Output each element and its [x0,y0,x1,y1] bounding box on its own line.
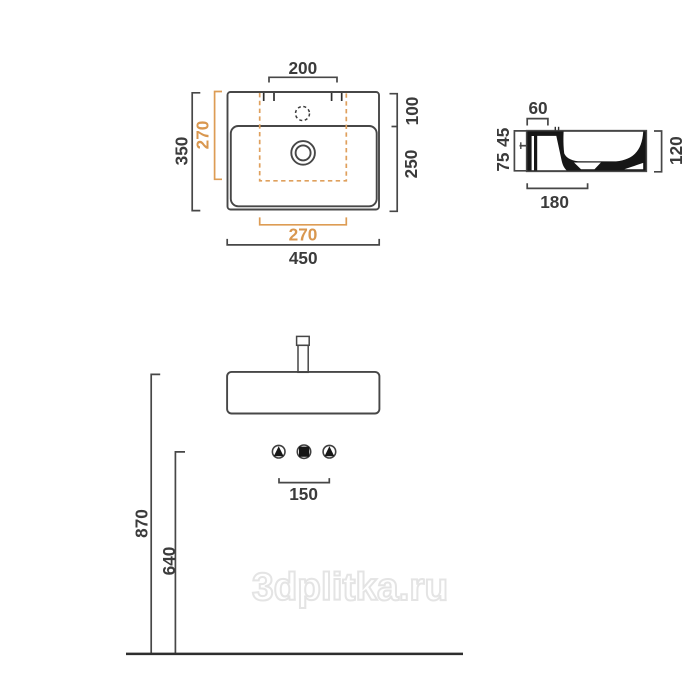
svg-text:100: 100 [402,97,422,126]
svg-text:350: 350 [171,137,191,166]
svg-text:120: 120 [666,136,686,165]
svg-text:270: 270 [193,121,213,150]
svg-text:250: 250 [401,150,421,179]
svg-text:3dplitka.ru: 3dplitka.ru [252,566,448,609]
svg-text:200: 200 [288,58,317,78]
svg-text:75: 75 [493,152,513,172]
svg-text:150: 150 [289,484,318,504]
svg-text:640: 640 [159,547,179,576]
svg-text:180: 180 [540,192,569,212]
svg-text:270: 270 [289,225,318,245]
svg-text:450: 450 [289,248,318,268]
svg-text:60: 60 [528,98,547,118]
svg-text:45: 45 [493,127,513,147]
svg-text:870: 870 [132,509,152,538]
